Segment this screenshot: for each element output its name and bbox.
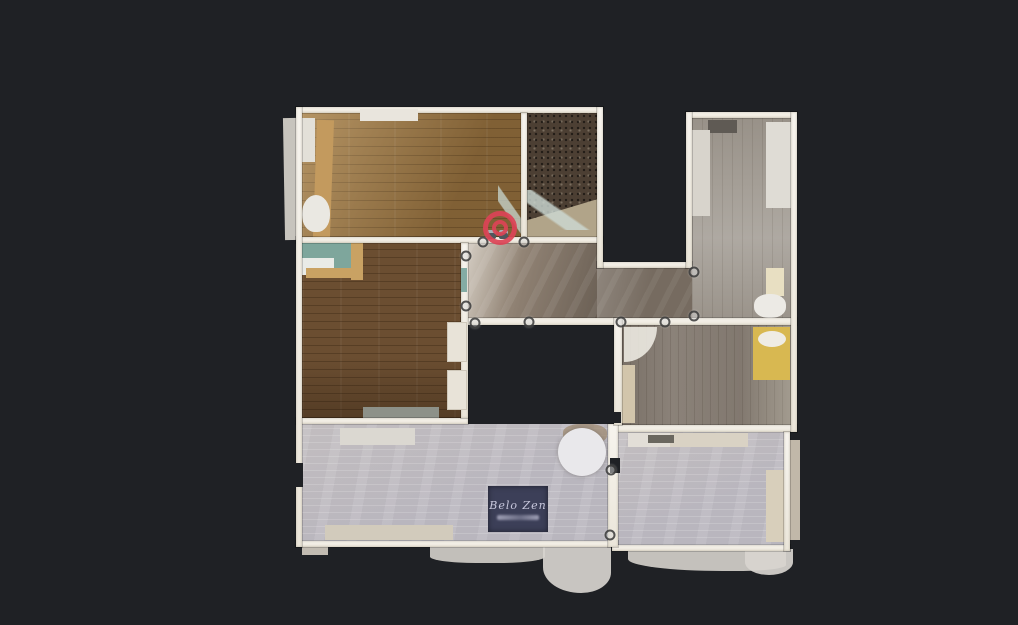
waypoint-marker[interactable] [461,301,472,312]
waypoint-marker[interactable] [605,530,616,541]
waypoint-marker[interactable] [524,317,535,328]
position-marker [483,211,517,245]
waypoint-marker[interactable] [470,318,481,329]
waypoint-marker[interactable] [461,251,472,262]
floorplan-viewer: Belo Zen [0,0,1018,625]
waypoint-marker[interactable] [689,311,700,322]
waypoint-marker[interactable] [616,317,627,328]
marker-layer [0,0,1018,625]
waypoint-marker[interactable] [606,465,617,476]
waypoint-marker[interactable] [689,267,700,278]
waypoint-marker[interactable] [660,317,671,328]
waypoint-marker[interactable] [519,237,530,248]
